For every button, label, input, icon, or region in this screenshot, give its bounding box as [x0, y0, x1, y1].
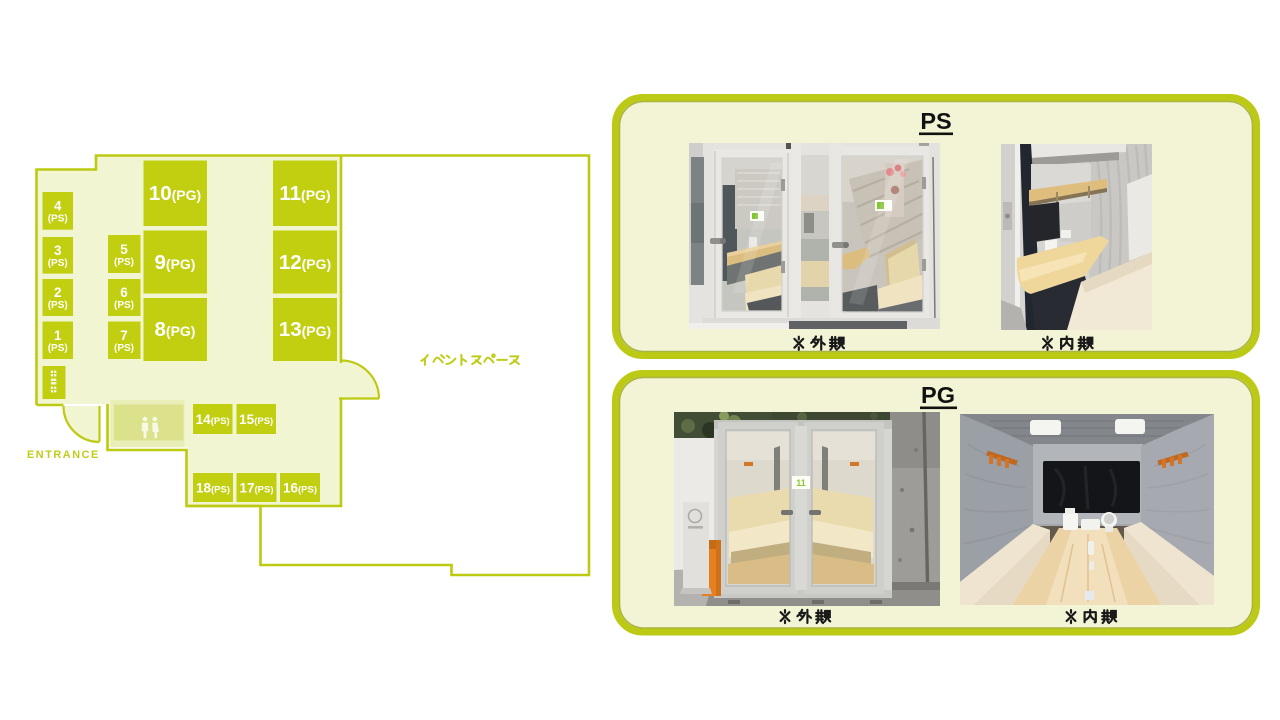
svg-text:1: 1 — [54, 328, 62, 343]
svg-text:(PS): (PS) — [48, 343, 68, 354]
svg-text:PG: PG — [921, 382, 955, 408]
svg-text:3: 3 — [54, 243, 62, 258]
svg-text:11: 11 — [796, 478, 806, 488]
svg-text:(PS): (PS) — [48, 258, 68, 269]
svg-text:4: 4 — [54, 199, 62, 214]
svg-text:7: 7 — [120, 328, 128, 343]
svg-text:(PS): (PS) — [114, 257, 134, 268]
svg-text:(PS): (PS) — [114, 343, 134, 354]
svg-text:2: 2 — [54, 285, 62, 300]
svg-text:6: 6 — [120, 285, 128, 300]
svg-text:PS: PS — [920, 108, 951, 134]
svg-text:(PS): (PS) — [48, 214, 68, 225]
svg-text:(PS): (PS) — [114, 300, 134, 311]
svg-text:(PS): (PS) — [48, 300, 68, 311]
svg-text:ENTRANCE: ENTRANCE — [27, 449, 100, 461]
svg-text:5: 5 — [120, 242, 128, 257]
